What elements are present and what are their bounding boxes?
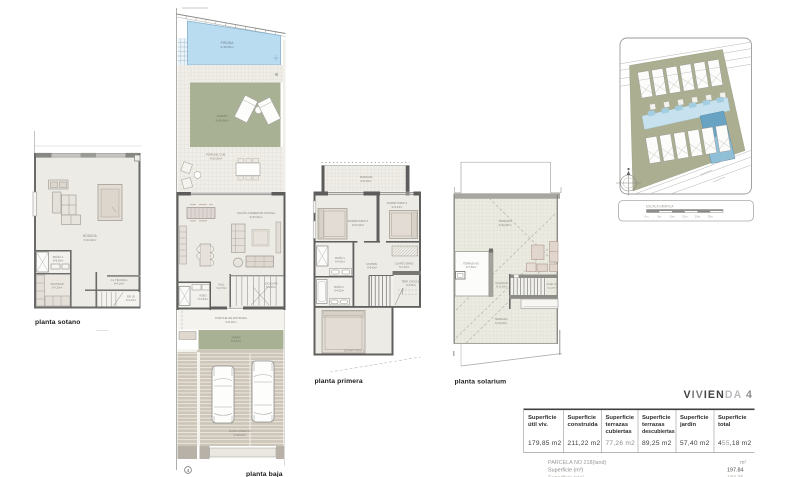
svg-text:terrazas: terrazas bbox=[642, 422, 665, 428]
svg-text:JARDÍN: JARDÍN bbox=[231, 336, 240, 340]
svg-text:77,26 m2: 77,26 m2 bbox=[606, 440, 636, 447]
svg-text:Superficie (m²): Superficie (m²) bbox=[548, 468, 584, 474]
svg-text:Superficie: Superficie bbox=[680, 415, 709, 421]
svg-text:TERRAZA: TERRAZA bbox=[498, 219, 512, 223]
svg-text:S=86,80m²: S=86,80m² bbox=[215, 118, 228, 122]
svg-text:S=2,70m²: S=2,70m² bbox=[216, 287, 226, 290]
svg-text:DISTRIB.: DISTRIB. bbox=[367, 262, 378, 266]
svg-text:S=4,10m²: S=4,10m² bbox=[114, 283, 125, 286]
svg-text:planta baja: planta baja bbox=[246, 471, 283, 477]
svg-text:planta solarium: planta solarium bbox=[455, 379, 507, 386]
svg-text:Superficie: Superficie bbox=[606, 415, 635, 421]
svg-text:15m: 15m bbox=[682, 215, 688, 219]
svg-text:CL.TÉCNICA: CL.TÉCNICA bbox=[111, 277, 128, 282]
svg-text:Superficie: Superficie bbox=[528, 415, 557, 421]
svg-text:S=7,80m²: S=7,80m² bbox=[466, 266, 477, 269]
svg-text:S=6,08m²: S=6,08m² bbox=[406, 284, 416, 287]
svg-text:S=9,64m²: S=9,64m² bbox=[392, 206, 403, 209]
svg-text:ESCALA GRÁFICA: ESCALA GRÁFICA bbox=[646, 205, 674, 209]
svg-text:Superficie: Superficie bbox=[718, 415, 747, 421]
svg-text:211,22 m2: 211,22 m2 bbox=[568, 440, 601, 447]
svg-text:10m: 10m bbox=[669, 215, 675, 219]
svg-text:57,40 m2: 57,40 m2 bbox=[680, 440, 710, 447]
svg-text:Superficie: Superficie bbox=[568, 415, 597, 421]
svg-text:BODEGA: BODEGA bbox=[83, 234, 98, 238]
svg-text:S=4,35m²: S=4,35m² bbox=[335, 260, 345, 263]
svg-text:455,18 m2: 455,18 m2 bbox=[718, 440, 752, 447]
svg-text:BAÑO 4: BAÑO 4 bbox=[53, 254, 64, 259]
svg-text:S=24,00m²: S=24,00m² bbox=[495, 322, 507, 325]
svg-text:SOLARIUM: SOLARIUM bbox=[495, 282, 508, 285]
svg-text:DORMITORIO 3: DORMITORIO 3 bbox=[387, 201, 408, 205]
svg-text:PARCELA NO 218(land): PARCELA NO 218(land) bbox=[548, 460, 607, 466]
svg-text:JARDÍN: JARDÍN bbox=[217, 114, 228, 118]
svg-text:DORMITORIO 2: DORMITORIO 2 bbox=[348, 219, 369, 223]
svg-text:descubiertas: descubiertas bbox=[642, 429, 675, 435]
svg-text:S=7,40m²: S=7,40m² bbox=[399, 266, 409, 269]
svg-text:HALL: HALL bbox=[218, 284, 225, 287]
svg-text:S=4,50m²: S=4,50m² bbox=[334, 289, 344, 292]
svg-text:m²: m² bbox=[740, 460, 746, 466]
svg-text:S=2,90m²: S=2,90m² bbox=[198, 298, 209, 301]
svg-text:S=2,08m²: S=2,08m² bbox=[547, 286, 557, 289]
svg-text:S=7,20m²: S=7,20m² bbox=[52, 287, 63, 290]
svg-text:S=29,00m²: S=29,00m² bbox=[234, 433, 247, 437]
svg-text:Superficie: Superficie bbox=[642, 415, 671, 421]
svg-text:S=6,00m²: S=6,00m² bbox=[53, 260, 64, 263]
svg-text:4: 4 bbox=[187, 468, 190, 473]
svg-text:S=8,20m²: S=8,20m² bbox=[225, 320, 236, 324]
svg-text:S=62,80m²: S=62,80m² bbox=[499, 223, 512, 227]
svg-text:ESCALERA: ESCALERA bbox=[264, 283, 278, 286]
svg-text:PORCHE CUB.: PORCHE CUB. bbox=[206, 153, 226, 157]
svg-text:S=10,90m²: S=10,90m² bbox=[210, 157, 223, 161]
svg-text:S=36,80m²: S=36,80m² bbox=[220, 45, 233, 49]
svg-text:PISCINA: PISCINA bbox=[221, 41, 235, 45]
svg-text:89,25 m2: 89,25 m2 bbox=[642, 440, 672, 447]
svg-text:VIVIENDA 4: VIVIENDA 4 bbox=[684, 389, 754, 401]
svg-text:179,85 m2: 179,85 m2 bbox=[528, 440, 561, 447]
svg-text:total: total bbox=[718, 422, 731, 428]
svg-text:TERRAZA: TERRAZA bbox=[494, 317, 507, 321]
svg-text:197.84: 197.84 bbox=[727, 468, 744, 474]
svg-text:S=10,60m²: S=10,60m² bbox=[352, 224, 364, 227]
svg-text:construida: construida bbox=[568, 422, 599, 428]
svg-text:SALÓN-COMEDOR-COCINA: SALÓN-COMEDOR-COCINA bbox=[237, 210, 275, 215]
svg-text:S=5,40m²: S=5,40m² bbox=[367, 266, 377, 269]
svg-text:ASEO: ASEO bbox=[199, 294, 206, 298]
svg-text:S=11,90m²: S=11,90m² bbox=[496, 285, 507, 288]
svg-text:VESTIDOR: VESTIDOR bbox=[50, 282, 63, 286]
svg-text:25m: 25m bbox=[708, 215, 714, 219]
svg-text:PORCHE DE ENTRADA: PORCHE DE ENTRADA bbox=[215, 316, 247, 320]
svg-text:S=43,90m²: S=43,90m² bbox=[84, 238, 97, 242]
svg-text:jardín: jardín bbox=[679, 422, 696, 428]
svg-text:APARCAMIENTO: APARCAMIENTO bbox=[229, 429, 253, 433]
svg-text:0m: 0m bbox=[645, 215, 650, 219]
svg-text:S=46,00m²: S=46,00m² bbox=[250, 215, 263, 219]
svg-text:S=9,50m²: S=9,50m² bbox=[361, 180, 372, 183]
svg-text:útil viv.: útil viv. bbox=[528, 422, 548, 428]
svg-text:20m: 20m bbox=[695, 215, 701, 219]
svg-text:S=8,60m²: S=8,60m² bbox=[231, 340, 242, 343]
svg-text:S=4,20m²: S=4,20m² bbox=[126, 299, 137, 302]
svg-text:S=4,80m²: S=4,80m² bbox=[266, 286, 276, 289]
svg-text:CUAD. AS: CUAD. AS bbox=[547, 283, 558, 286]
svg-text:planta sotano: planta sotano bbox=[35, 319, 80, 326]
svg-text:TERRAZA: TERRAZA bbox=[359, 175, 372, 179]
svg-text:planta primera: planta primera bbox=[315, 378, 363, 385]
svg-text:5m: 5m bbox=[657, 215, 662, 219]
svg-text:DORMITORIO 1: DORMITORIO 1 bbox=[344, 349, 365, 353]
svg-text:terrazas: terrazas bbox=[606, 422, 629, 428]
svg-text:TERR. DESCUB.: TERR. DESCUB. bbox=[401, 281, 421, 284]
svg-text:cubiertas: cubiertas bbox=[606, 429, 633, 435]
